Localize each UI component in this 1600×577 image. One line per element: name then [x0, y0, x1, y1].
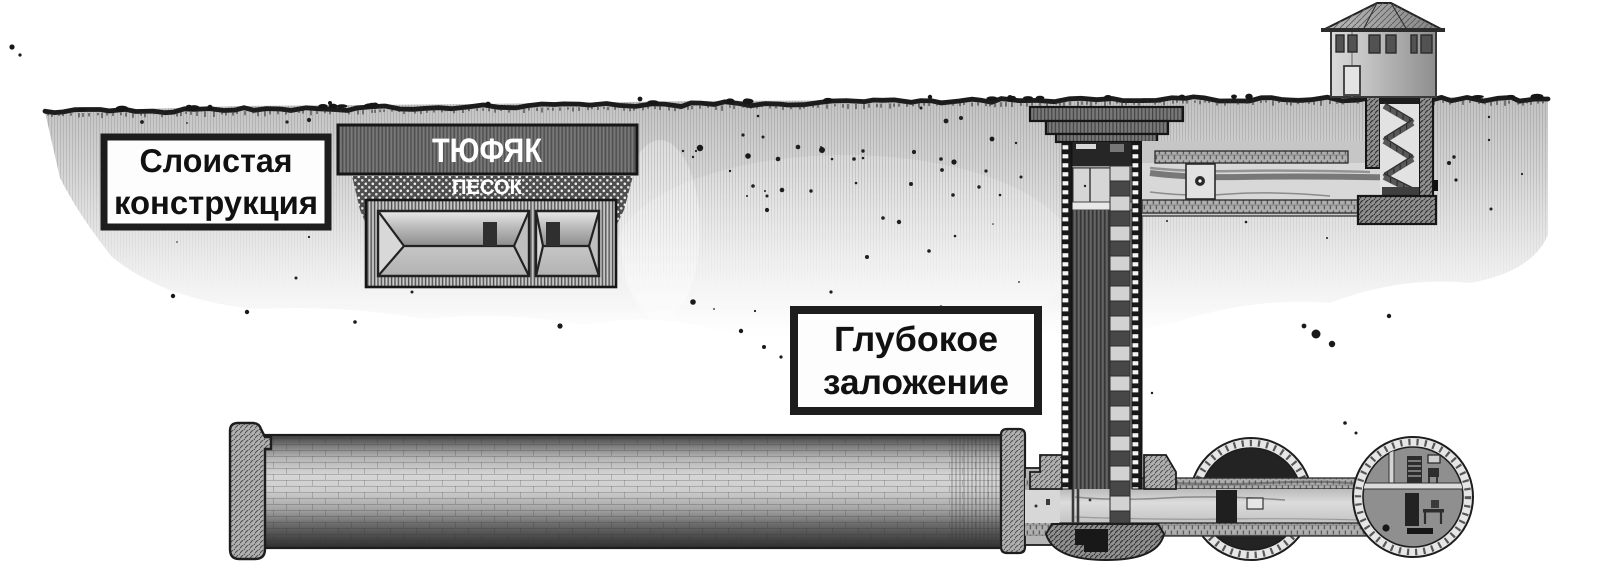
svg-text:Слоистая: Слоистая [140, 142, 293, 179]
svg-text:заложение: заложение [823, 363, 1009, 402]
svg-text:ТЮФЯК: ТЮФЯК [432, 132, 542, 170]
svg-text:конструкция: конструкция [114, 184, 318, 221]
svg-text:ПЕСОК: ПЕСОК [452, 176, 522, 199]
svg-text:Глубокое: Глубокое [834, 320, 998, 359]
